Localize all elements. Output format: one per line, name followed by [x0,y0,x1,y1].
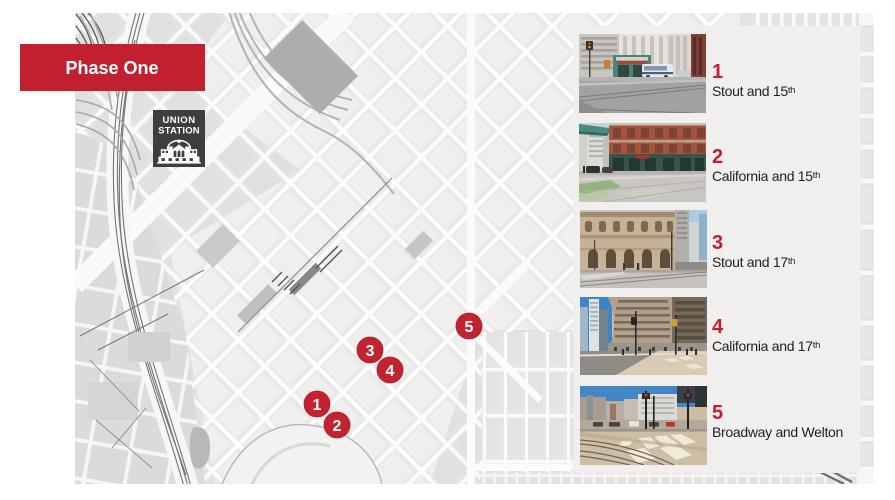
svg-text:3: 3 [712,232,723,254]
svg-text:2: 2 [333,418,342,435]
svg-text:Phase One: Phase One [65,58,158,78]
svg-text:2: 2 [712,146,723,168]
svg-text:UNION: UNION [162,115,195,126]
svg-text:5: 5 [712,402,723,424]
svg-text:Stout and 15th: Stout and 15th [712,83,795,99]
svg-text:1: 1 [712,61,723,83]
svg-text:4: 4 [386,363,395,380]
svg-text:5: 5 [465,319,474,336]
svg-text:Broadway and Welton: Broadway and Welton [712,424,843,440]
svg-text:California and 17th: California and 17th [712,338,820,354]
svg-text:California and 15th: California and 15th [712,168,820,184]
svg-text:STATION: STATION [158,126,200,137]
svg-text:1: 1 [313,397,322,414]
svg-text:Stout and 17th: Stout and 17th [712,254,795,270]
svg-text:3: 3 [366,343,375,360]
svg-text:4: 4 [712,316,724,338]
